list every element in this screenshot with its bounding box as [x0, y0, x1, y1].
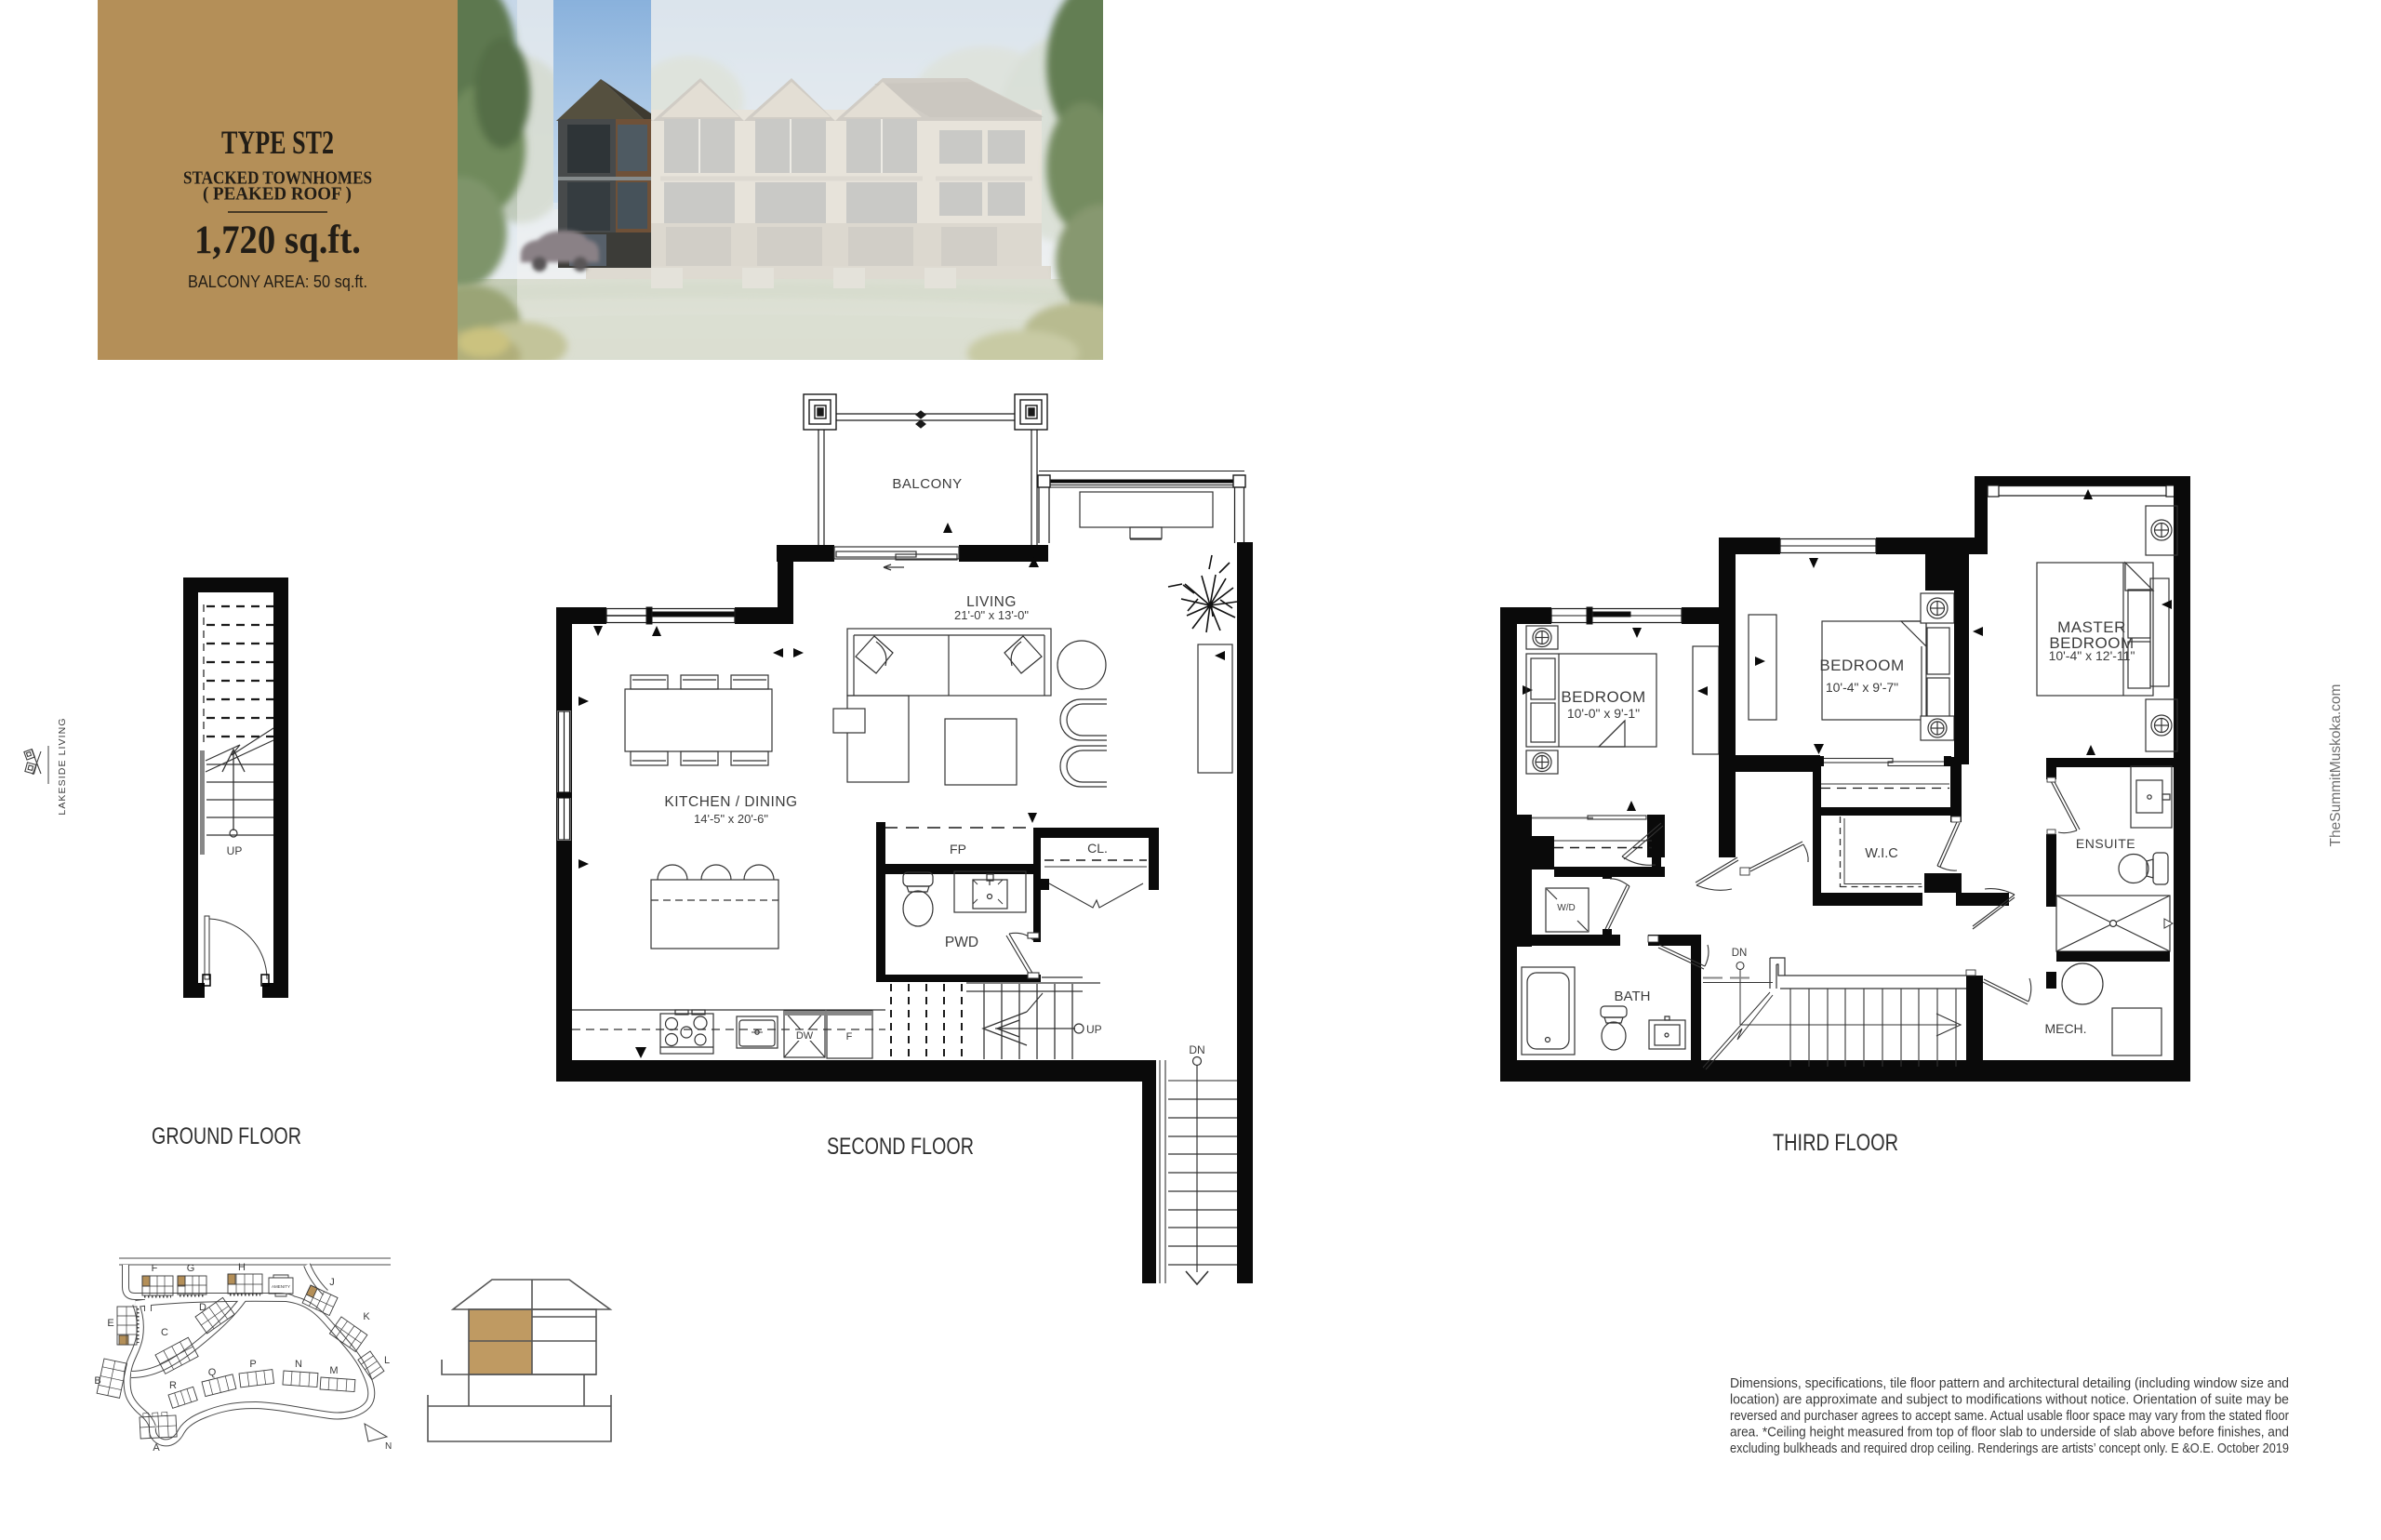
svg-text:1,720 sq.ft.: 1,720 sq.ft. — [194, 219, 361, 262]
svg-text:BALCONY AREA: 50 sq.ft.: BALCONY AREA: 50 sq.ft. — [188, 272, 367, 291]
svg-text:TheSummitMuskoka.com: TheSummitMuskoka.com — [2328, 684, 2344, 847]
svg-text:E: E — [107, 1318, 113, 1329]
svg-text:R: R — [169, 1380, 177, 1391]
svg-text:F: F — [152, 1263, 158, 1274]
svg-text:AMENITY: AMENITY — [272, 1284, 290, 1289]
svg-text:BEDROOM: BEDROOM — [1819, 657, 1904, 674]
svg-text:21'-0" x 13'-0": 21'-0" x 13'-0" — [954, 608, 1029, 622]
svg-text:THIRD FLOOR: THIRD FLOOR — [1773, 1130, 1898, 1156]
svg-text:CL.: CL. — [1087, 841, 1108, 856]
svg-text:( PEAKED ROOF ): ( PEAKED ROOF ) — [203, 185, 352, 205]
svg-text:GROUND FLOOR: GROUND FLOOR — [152, 1123, 301, 1149]
svg-text:BALCONY: BALCONY — [892, 476, 962, 492]
svg-text:DN: DN — [1189, 1043, 1204, 1056]
svg-text:C: C — [161, 1327, 168, 1338]
svg-text:B: B — [94, 1375, 100, 1387]
svg-text:H: H — [238, 1262, 246, 1273]
svg-text:ENSUITE: ENSUITE — [2076, 836, 2135, 851]
svg-text:10'-4" x 12'-11": 10'-4" x 12'-11" — [2049, 648, 2135, 663]
svg-text:reversed and purchaser agrees: reversed and purchaser agrees to accept … — [1730, 1408, 2289, 1424]
svg-text:J: J — [329, 1277, 335, 1288]
svg-text:N: N — [385, 1441, 392, 1452]
svg-text:A: A — [153, 1442, 160, 1454]
svg-text:area. *Ceiling height measured: area. *Ceiling height measured from top … — [1730, 1425, 2289, 1440]
svg-text:L: L — [384, 1355, 390, 1366]
svg-text:excluding bulkheads and requir: excluding bulkheads and required drop ce… — [1730, 1440, 2289, 1456]
svg-text:K: K — [363, 1311, 370, 1322]
svg-text:M: M — [329, 1365, 338, 1376]
svg-text:W/D: W/D — [1557, 903, 1575, 913]
svg-text:UP: UP — [1086, 1023, 1102, 1036]
svg-text:N: N — [295, 1359, 302, 1370]
svg-text:DW: DW — [796, 1030, 814, 1042]
svg-text:10'-4" x 9'-7": 10'-4" x 9'-7" — [1826, 680, 1898, 695]
svg-text:SECOND FLOOR: SECOND FLOOR — [827, 1134, 974, 1160]
svg-text:PWD: PWD — [945, 935, 978, 950]
svg-text:FP: FP — [950, 842, 966, 856]
svg-text:BEDROOM: BEDROOM — [1561, 688, 1645, 706]
svg-text:W.I.C: W.I.C — [1865, 846, 1897, 861]
svg-text:P: P — [249, 1359, 256, 1370]
svg-text:location) are approximate and: location) are approximate and subject to… — [1730, 1392, 2289, 1408]
svg-text:LAKESIDE LIVING: LAKESIDE LIVING — [57, 717, 68, 815]
svg-text:MECH.: MECH. — [2044, 1021, 2086, 1036]
svg-text:14'-5" x 20'-6": 14'-5" x 20'-6" — [694, 812, 768, 826]
svg-text:DN: DN — [1732, 948, 1748, 959]
svg-text:F: F — [846, 1031, 853, 1042]
svg-text:Dimensions, specifications, ti: Dimensions, specifications, tile floor p… — [1730, 1375, 2289, 1391]
svg-text:TYPE ST2: TYPE ST2 — [221, 124, 334, 161]
svg-text:BATH: BATH — [1615, 989, 1651, 1004]
svg-text:KITCHEN / DINING: KITCHEN / DINING — [664, 794, 797, 810]
svg-text:UP: UP — [227, 844, 243, 857]
svg-text:Q: Q — [208, 1367, 217, 1378]
svg-text:D: D — [199, 1302, 206, 1313]
svg-text:10'-0" x 9'-1": 10'-0" x 9'-1" — [1567, 706, 1640, 721]
svg-text:G: G — [187, 1263, 195, 1274]
